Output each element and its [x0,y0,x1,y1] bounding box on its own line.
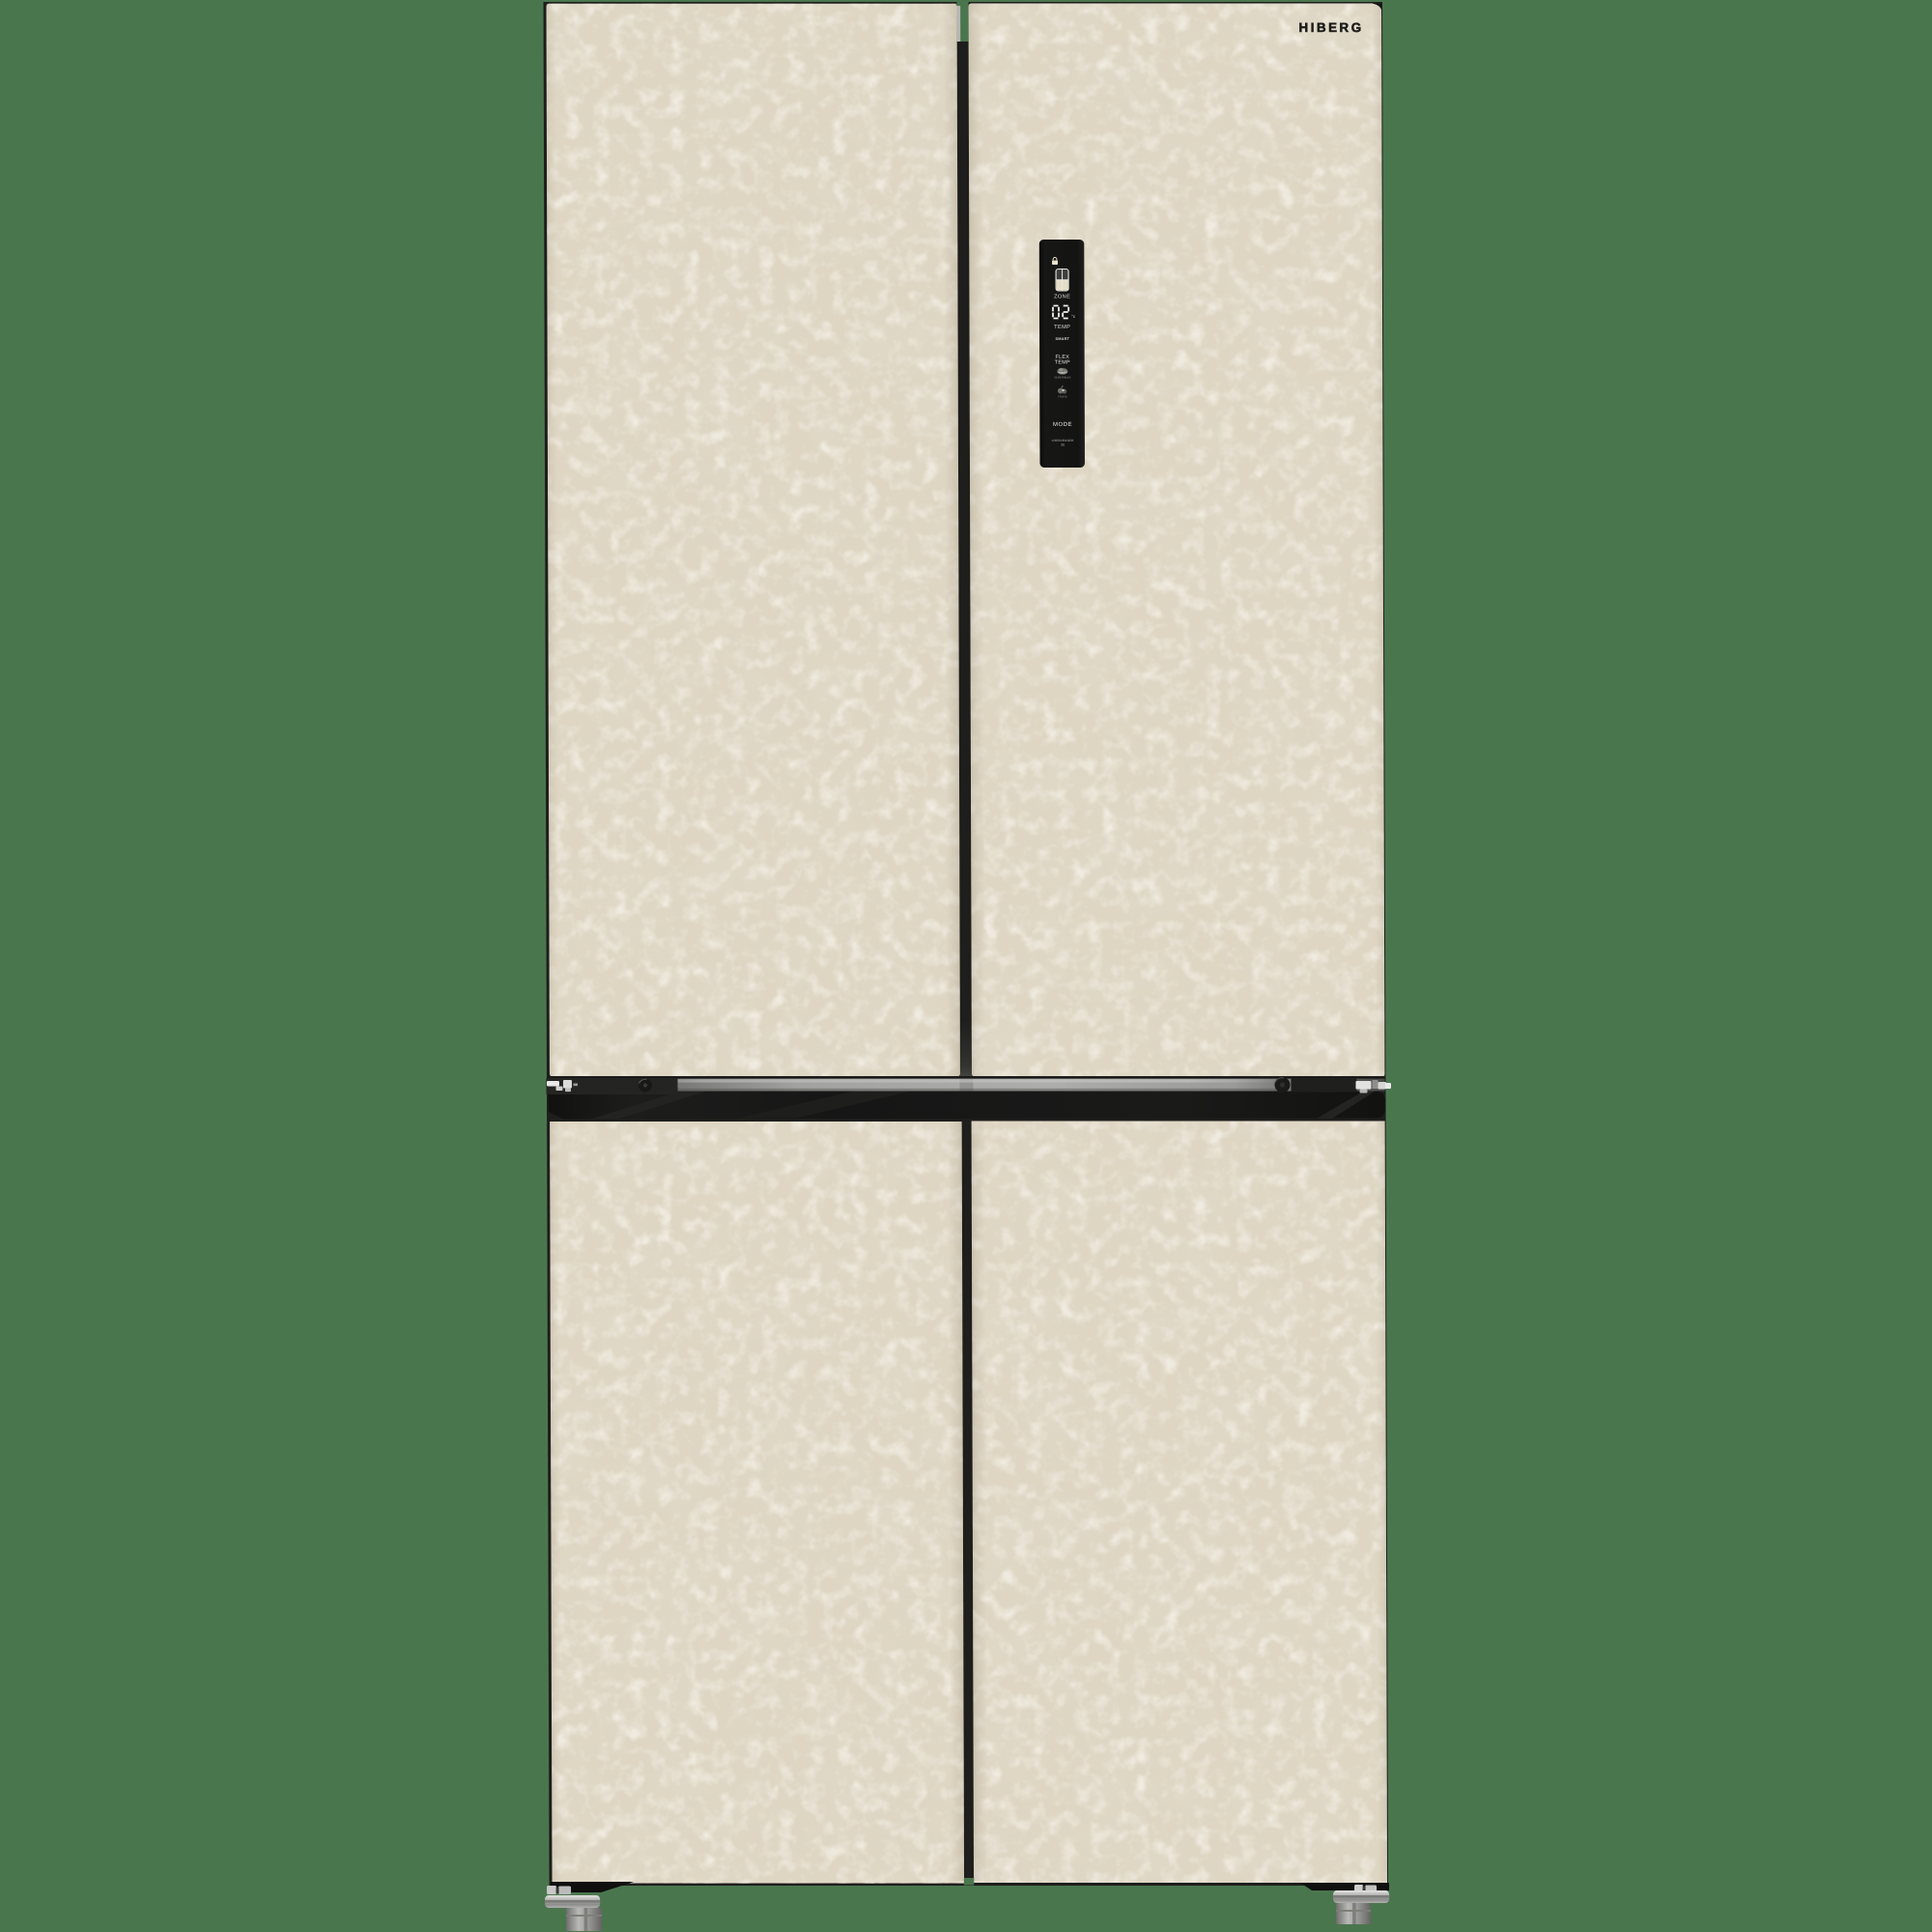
svg-text:°c: °c [1071,314,1076,319]
svg-text:3S: 3S [1061,442,1065,446]
svg-text:LOCK/UNLOCK: LOCK/UNLOCK [1052,439,1075,442]
svg-text:ZONE: ZONE [1054,295,1070,300]
svg-text:SMART: SMART [1056,337,1070,341]
svg-text:VEGETABLES: VEGETABLES [1054,376,1070,380]
svg-text:FRUITS: FRUITS [1058,394,1067,398]
svg-text:HIBERG: HIBERG [1299,20,1364,35]
svg-text:TEMP: TEMP [1055,360,1070,366]
svg-text:TEMP: TEMP [1054,325,1070,330]
svg-text:MODE: MODE [1053,422,1072,428]
